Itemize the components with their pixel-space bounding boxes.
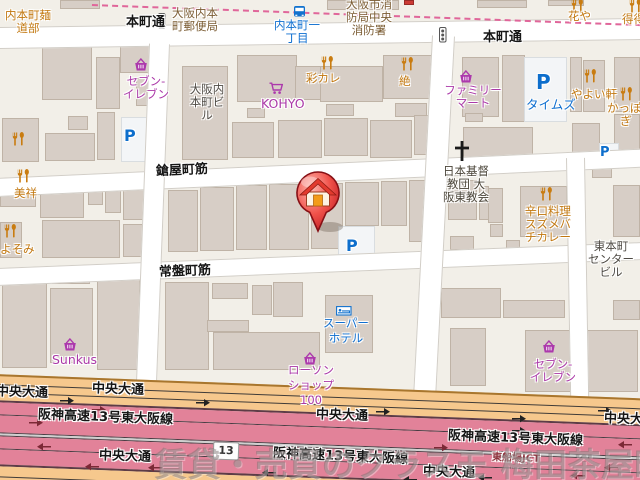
fire-station-icon [404, 0, 414, 5]
road-label-chuo-odori-4: 中央大通 [604, 412, 640, 427]
restaurant-icon [540, 186, 555, 205]
building [503, 300, 565, 318]
building-label-osaka-uchihommachi: 大阪内本町ビル [186, 83, 228, 122]
restaurant-icon [4, 223, 19, 242]
building [326, 104, 354, 116]
parking-icon-center: P [346, 236, 358, 255]
restaurant-icon [12, 131, 27, 150]
building [450, 328, 486, 386]
oneway-arrow-icon [196, 392, 210, 411]
building [237, 55, 297, 102]
building [613, 185, 640, 237]
oneway-arrow-icon [60, 390, 74, 409]
building [381, 181, 407, 226]
parking-icon-times: P [536, 70, 551, 94]
building [42, 220, 120, 258]
parking-icon-northwest: P [124, 126, 136, 145]
building [252, 285, 272, 315]
road-label-yariyamachi-suji: 鎗屋町筋 [156, 163, 209, 178]
restaurant-icon [17, 168, 32, 187]
building [97, 112, 115, 160]
building [613, 300, 640, 320]
poi-label-church: 日本基督教団 大阪東教会 [438, 165, 494, 204]
restaurant-icon [584, 68, 599, 87]
oneway-arrow-icon [37, 436, 51, 455]
road-label-tokiwamachi-suji: 常盤町筋 [159, 264, 211, 279]
convenience-store-icon [542, 338, 557, 357]
building [324, 118, 368, 156]
building [96, 57, 120, 109]
poi-label-seven-eleven-se: セブン-イレブン [528, 358, 578, 384]
poi-label-zetsu: 絶 [399, 75, 411, 88]
poi-label-tokutoku: 得得 [622, 13, 640, 26]
building [370, 120, 412, 158]
poi-label-sunkus: Sunkus [52, 353, 97, 366]
parking-icon-east: P [600, 145, 610, 160]
convenience-store-icon [134, 56, 149, 75]
agency-watermark: 賃貸・売買のクラスモ 梅田茶屋町店 [154, 438, 640, 480]
poi-label-menya: 内本町麺道部 [0, 9, 56, 35]
building [2, 272, 47, 368]
road-label-honmachi-dori-east: 本町通 [483, 31, 522, 44]
building [207, 320, 249, 332]
poi-label-lawson: ローソンショップ100 [286, 363, 336, 408]
church-cross-icon [455, 141, 469, 165]
building [168, 190, 198, 252]
poi-label-hanaya: 花や [568, 10, 591, 23]
building [236, 185, 267, 250]
road-label-chuo-odori-2: 中央大通 [92, 382, 144, 397]
poi-label-misho: 美祥 [14, 187, 37, 200]
building [97, 275, 140, 370]
building [477, 0, 527, 8]
poi-label-fire-station: 大阪市消防局中央消防署 [340, 0, 398, 37]
map-canvas[interactable]: 内本町麺道部 大阪内本町郵便局 大阪市消防局中央消防署 内本町一丁目 本町通 本… [0, 0, 640, 480]
building [165, 282, 209, 370]
poi-label-super-hotel: スーパーホテル [321, 316, 371, 346]
oneway-arrow-icon [376, 401, 390, 420]
restaurant-icon [401, 56, 416, 75]
building [45, 133, 95, 161]
poi-label-times: タイムズ [526, 98, 576, 111]
poi-label-yosomi: よそみ [0, 243, 35, 256]
building-label-center-bldg: 東本町センタービル [586, 240, 636, 279]
building [502, 55, 525, 122]
road-label-honmachi-dori-west: 本町通 [126, 16, 165, 29]
road-label-chuo-odori-5: 中央大通 [99, 449, 151, 464]
building [345, 182, 379, 226]
road-label-chuo-odori-1: 中央大通 [0, 385, 48, 400]
building [278, 120, 322, 158]
building [42, 46, 92, 100]
building [68, 116, 88, 130]
poi-label-familymart: ファミリーマート [444, 84, 502, 110]
poi-label-kohyo: KOHYO [261, 97, 305, 110]
building [450, 236, 474, 250]
traffic-signal-icon [439, 27, 447, 47]
poi-label-aya-curry: 彩カレ [306, 72, 341, 85]
building [212, 283, 248, 299]
building [232, 122, 274, 158]
building [273, 282, 303, 317]
location-marker[interactable] [292, 170, 344, 238]
road-label-chuo-odori-3: 中央大通 [316, 408, 368, 423]
poi-label-seven-eleven-nw: セブン-イレブン [122, 75, 170, 101]
oneway-arrow-icon [85, 456, 99, 475]
bus-stop-label: 内本町一丁目 [270, 19, 324, 45]
building [441, 288, 501, 318]
poi-label-suzumebachi-curry: 辛口料理スズメバチカレー [524, 205, 572, 244]
building [490, 224, 503, 237]
building [200, 187, 234, 251]
poi-label-yayoiken: やよい軒 [571, 88, 617, 101]
poi-label-kappogi-2: ぎ [620, 115, 632, 128]
poi-label-post-office: 大阪内本町郵便局 [172, 7, 218, 33]
building [465, 113, 483, 122]
